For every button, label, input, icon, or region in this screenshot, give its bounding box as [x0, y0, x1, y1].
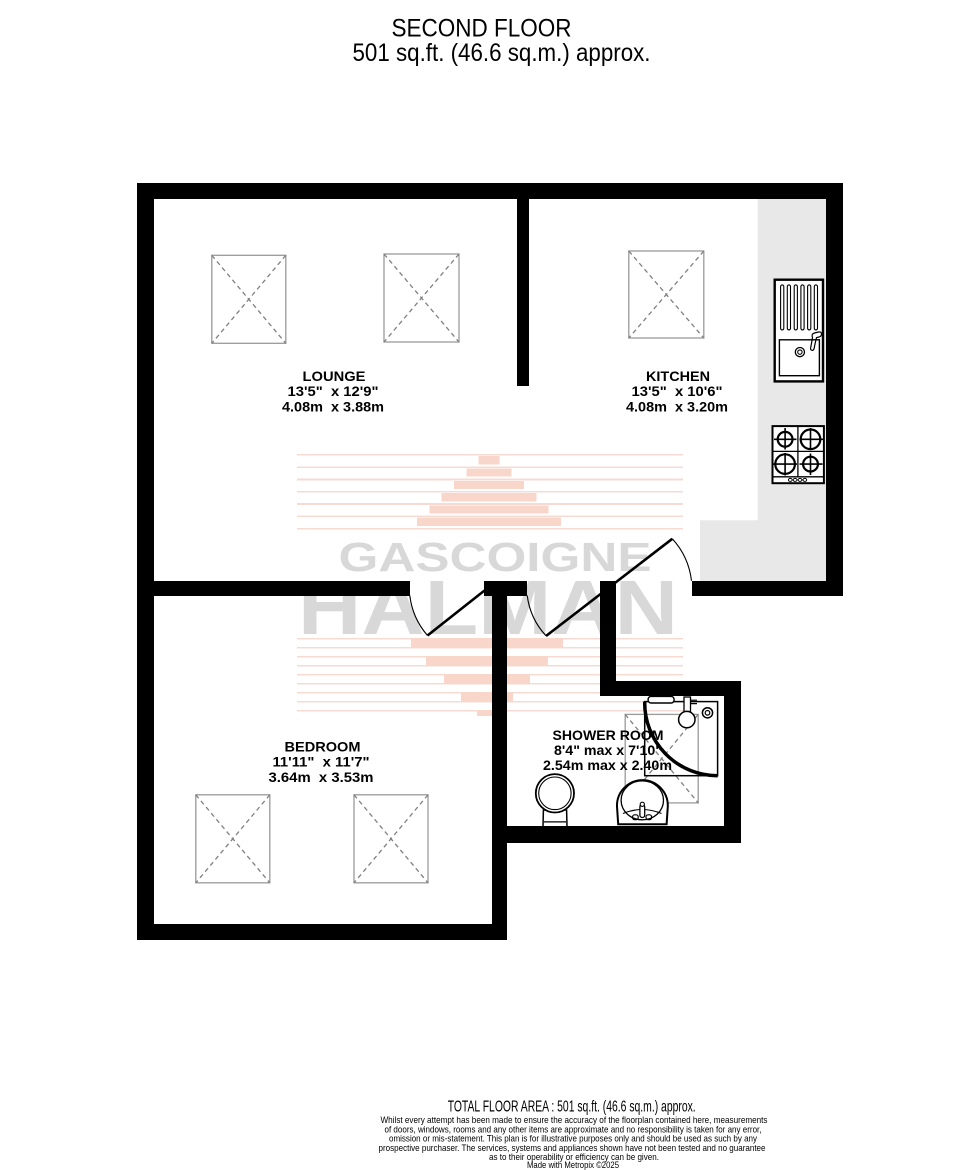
- svg-text:TOTAL FLOOR AREA : 501 sq.ft.: TOTAL FLOOR AREA : 501 sq.ft. (46.6 sq.m…: [448, 1099, 696, 1116]
- svg-text:BEDROOM: BEDROOM: [285, 738, 361, 754]
- svg-text:13'5" x 12'9": 13'5" x 12'9": [288, 383, 379, 399]
- svg-text:2.54m max x 2.40m: 2.54m max x 2.40m: [543, 757, 672, 773]
- svg-text:4.08m x 3.88m: 4.08m x 3.88m: [282, 398, 384, 414]
- svg-text:4.08m x 3.20m: 4.08m x 3.20m: [626, 398, 728, 414]
- svg-text:3.64m x 3.53m: 3.64m x 3.53m: [269, 769, 374, 785]
- svg-text:KITCHEN: KITCHEN: [646, 368, 710, 384]
- svg-text:LOUNGE: LOUNGE: [303, 368, 366, 384]
- svg-text:Made with Metropix ©2025: Made with Metropix ©2025: [527, 1160, 619, 1170]
- svg-text:11'11" x 11'7": 11'11" x 11'7": [273, 754, 370, 770]
- svg-text:13'5" x 10'6": 13'5" x 10'6": [632, 383, 723, 399]
- svg-text:501 sq.ft. (46.6 sq.m.) approx: 501 sq.ft. (46.6 sq.m.) approx.: [353, 39, 651, 67]
- svg-text:SHOWER ROOM: SHOWER ROOM: [553, 727, 664, 743]
- svg-text:8'4" max x 7'10": 8'4" max x 7'10": [554, 742, 662, 758]
